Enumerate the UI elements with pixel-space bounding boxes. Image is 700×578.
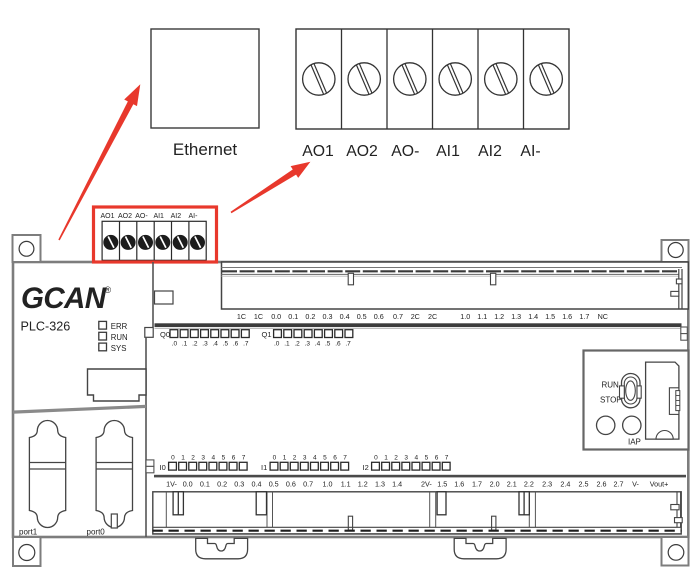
svg-text:2.2: 2.2 [524, 480, 534, 489]
svg-text:0: 0 [171, 455, 175, 462]
svg-text:2.6: 2.6 [597, 480, 607, 489]
svg-text:Q1: Q1 [262, 330, 272, 339]
svg-text:4: 4 [414, 455, 418, 462]
svg-text:AO2: AO2 [118, 213, 132, 220]
svg-text:AO1: AO1 [100, 213, 114, 220]
svg-text:.1: .1 [182, 340, 188, 347]
svg-text:0: 0 [374, 455, 378, 462]
svg-text:IAP: IAP [628, 438, 641, 447]
svg-text:I0: I0 [160, 463, 166, 472]
svg-text:7: 7 [343, 455, 347, 462]
svg-text:Ethernet: Ethernet [173, 140, 238, 159]
svg-text:1.2: 1.2 [358, 480, 368, 489]
svg-text:.0: .0 [274, 340, 280, 347]
svg-text:0.2: 0.2 [217, 480, 227, 489]
svg-text:0.3: 0.3 [234, 480, 244, 489]
svg-text:6: 6 [435, 455, 439, 462]
svg-text:3: 3 [404, 455, 408, 462]
svg-text:AI2: AI2 [171, 213, 182, 220]
svg-text:RUN: RUN [602, 381, 620, 390]
svg-text:V-: V- [632, 480, 639, 489]
svg-text:0.7: 0.7 [303, 480, 313, 489]
svg-text:1: 1 [384, 455, 388, 462]
svg-text:.7: .7 [345, 340, 351, 347]
svg-text:2.1: 2.1 [507, 480, 517, 489]
svg-text:Vout+: Vout+ [650, 480, 669, 489]
svg-text:0.0: 0.0 [271, 312, 281, 321]
svg-text:SYS: SYS [111, 344, 127, 353]
svg-text:STOP: STOP [600, 396, 622, 405]
svg-text:6: 6 [333, 455, 337, 462]
svg-text:1V-: 1V- [166, 480, 177, 489]
svg-text:NC: NC [598, 312, 608, 321]
svg-text:AO2: AO2 [346, 143, 378, 160]
svg-text:2C: 2C [428, 312, 437, 321]
svg-text:2: 2 [191, 455, 195, 462]
svg-text:0.1: 0.1 [200, 480, 210, 489]
svg-text:2.4: 2.4 [560, 480, 570, 489]
svg-text:0.2: 0.2 [305, 312, 315, 321]
svg-text:1.5: 1.5 [545, 312, 555, 321]
svg-text:2.7: 2.7 [614, 480, 624, 489]
svg-text:.4: .4 [315, 340, 321, 347]
svg-text:AO-: AO- [135, 213, 148, 220]
svg-text:0.0: 0.0 [183, 480, 193, 489]
svg-text:®: ® [105, 285, 112, 295]
svg-text:.4: .4 [212, 340, 218, 347]
svg-text:.7: .7 [243, 340, 249, 347]
svg-text:GCAN: GCAN [21, 282, 107, 315]
svg-text:Q0: Q0 [160, 330, 170, 339]
svg-text:0: 0 [273, 455, 277, 462]
svg-text:.1: .1 [284, 340, 290, 347]
svg-text:1.6: 1.6 [562, 312, 572, 321]
svg-text:1: 1 [181, 455, 185, 462]
svg-text:1: 1 [283, 455, 287, 462]
svg-text:5: 5 [222, 455, 226, 462]
svg-text:1.7: 1.7 [472, 480, 482, 489]
svg-text:1C: 1C [254, 312, 263, 321]
svg-text:1.1: 1.1 [341, 480, 351, 489]
svg-text:2: 2 [394, 455, 398, 462]
svg-text:1.7: 1.7 [579, 312, 589, 321]
svg-text:.2: .2 [294, 340, 300, 347]
svg-text:.5: .5 [325, 340, 331, 347]
svg-text:AI2: AI2 [478, 143, 502, 160]
svg-text:port0: port0 [87, 528, 106, 537]
svg-text:2: 2 [293, 455, 297, 462]
svg-text:0.6: 0.6 [374, 312, 384, 321]
svg-text:2.5: 2.5 [579, 480, 589, 489]
svg-text:AI1: AI1 [153, 213, 164, 220]
svg-text:1.6: 1.6 [454, 480, 464, 489]
svg-text:4: 4 [313, 455, 317, 462]
svg-text:0.4: 0.4 [340, 312, 350, 321]
svg-text:AI-: AI- [189, 213, 199, 220]
svg-text:.0: .0 [172, 340, 178, 347]
svg-text:1.1: 1.1 [477, 312, 487, 321]
svg-text:ERR: ERR [111, 322, 128, 331]
svg-text:.6: .6 [335, 340, 341, 347]
svg-text:AO-: AO- [391, 143, 419, 160]
svg-text:0.1: 0.1 [288, 312, 298, 321]
svg-text:PLC-326: PLC-326 [21, 320, 71, 334]
svg-text:7: 7 [445, 455, 449, 462]
svg-text:3: 3 [303, 455, 307, 462]
svg-text:.3: .3 [305, 340, 311, 347]
svg-text:4: 4 [211, 455, 215, 462]
svg-text:.2: .2 [192, 340, 198, 347]
svg-text:3: 3 [201, 455, 205, 462]
svg-text:5: 5 [323, 455, 327, 462]
svg-text:0.7: 0.7 [393, 312, 403, 321]
svg-text:AO1: AO1 [302, 143, 334, 160]
svg-text:1C: 1C [237, 312, 246, 321]
svg-text:AI-: AI- [520, 143, 540, 160]
svg-text:I2: I2 [363, 463, 369, 472]
svg-text:2.0: 2.0 [490, 480, 500, 489]
svg-text:1.4: 1.4 [392, 480, 402, 489]
svg-text:.6: .6 [233, 340, 239, 347]
svg-text:1.2: 1.2 [494, 312, 504, 321]
svg-text:1.3: 1.3 [511, 312, 521, 321]
svg-text:I1: I1 [261, 463, 267, 472]
svg-text:1.0: 1.0 [323, 480, 333, 489]
svg-text:.5: .5 [223, 340, 229, 347]
svg-text:2.3: 2.3 [542, 480, 552, 489]
svg-text:2C: 2C [411, 312, 420, 321]
svg-text:5: 5 [425, 455, 429, 462]
svg-text:AI1: AI1 [436, 143, 460, 160]
svg-text:0.4: 0.4 [252, 480, 262, 489]
svg-text:RUN: RUN [111, 333, 128, 342]
svg-text:0.3: 0.3 [323, 312, 333, 321]
svg-text:port1: port1 [19, 528, 38, 537]
svg-text:1.3: 1.3 [375, 480, 385, 489]
svg-text:1.5: 1.5 [437, 480, 447, 489]
svg-text:6: 6 [232, 455, 236, 462]
svg-text:2V-: 2V- [421, 480, 432, 489]
svg-text:7: 7 [242, 455, 246, 462]
svg-text:1.0: 1.0 [460, 312, 470, 321]
svg-text:.3: .3 [202, 340, 208, 347]
svg-text:0.5: 0.5 [269, 480, 279, 489]
svg-text:0.5: 0.5 [357, 312, 367, 321]
svg-text:1.4: 1.4 [528, 312, 538, 321]
svg-text:0.6: 0.6 [286, 480, 296, 489]
